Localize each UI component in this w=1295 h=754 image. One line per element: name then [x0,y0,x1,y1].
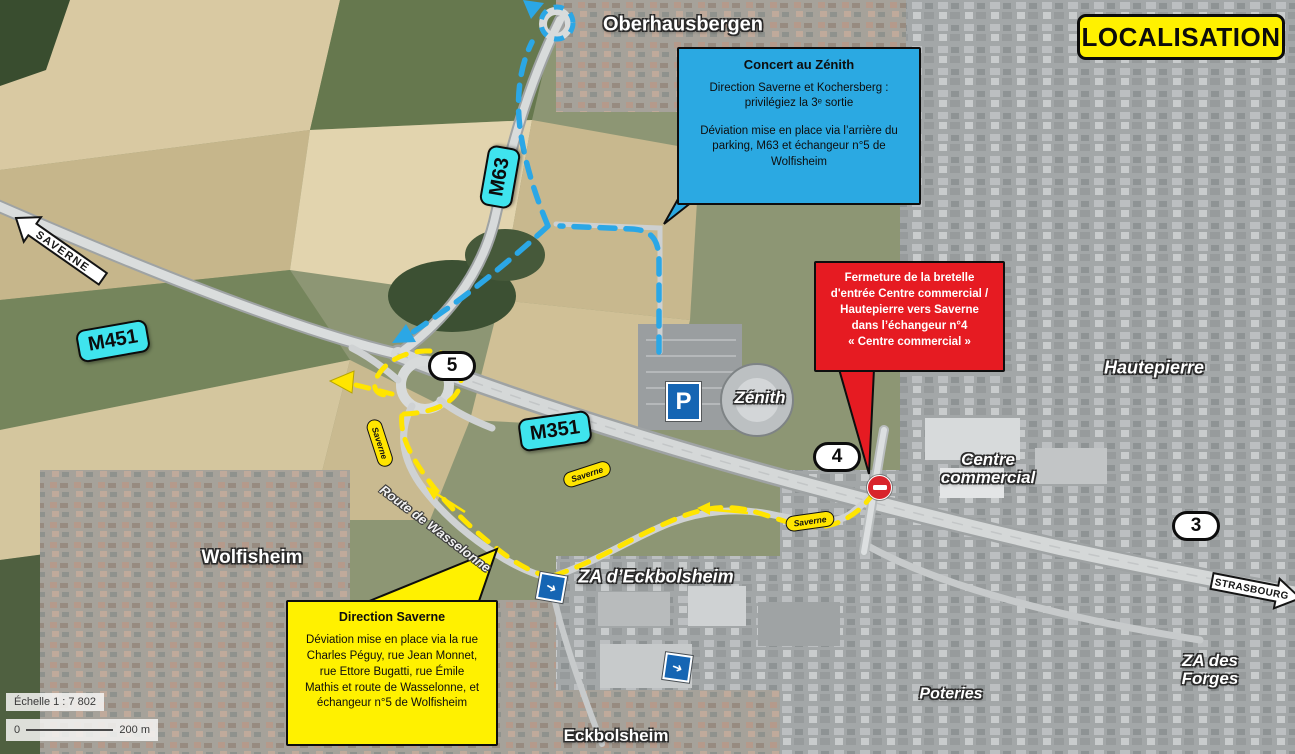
place-label-centre-commercial: Centre commercial [941,451,1036,487]
callout-concert-zenith: Concert au Zénith Direction Saverne et K… [677,47,921,205]
place-label-za-des-forges: ZA des Forges [1168,652,1253,688]
place-label-oberhausbergen: Oberhausbergen [603,15,763,36]
map-canvas: SAVERNE STRASBOURG Oberhausbergen Hautep… [0,0,1295,754]
no-entry-icon [867,475,892,500]
callout-paragraph: Déviation mise en place via l’arrière du… [684,124,914,170]
scale-label: Échelle 1 : 7 802 [6,693,104,711]
place-label-wolfisheim: Wolfisheim [202,548,303,568]
mandatory-direction-icon: ➜ [536,572,567,603]
callout-title: Concert au Zénith [684,57,914,72]
place-label-eckbolsheim: Eckbolsheim [564,727,669,745]
callout-paragraph: Déviation mise en place via la rue Charl… [292,633,492,712]
callout-paragraph: Direction Saverne et Kochersberg : privi… [684,81,914,112]
place-label-hautepierre: Hautepierre [1104,359,1204,378]
interchange-badge-4: 4 [813,442,861,472]
callout-title: Direction Saverne [292,610,492,624]
callout-fermeture-bretelle: Fermeture de la bretelle d'entrée Centre… [814,261,1005,372]
place-label-za-eckbolsheim: ZA d’Eckbolsheim [578,568,733,587]
place-label-poteries: Poteries [919,687,982,704]
parking-icon: P [666,382,701,421]
scale-line [26,729,113,732]
arrow-glyph: ➜ [670,659,685,675]
interchange-badge-5: 5 [428,351,476,381]
place-label-zenith: Zénith [735,389,786,407]
interchange-badge-3: 3 [1172,511,1220,541]
scale-zero: 0 [14,724,20,736]
scale-distance: 200 m [119,724,150,736]
no-entry-bar [873,485,887,490]
map-image: SAVERNE STRASBOURG [0,0,1295,754]
scale-bar: 0 200 m [6,719,158,741]
mandatory-direction-icon: ➜ [662,652,692,682]
page-title: LOCALISATION [1077,14,1285,60]
arrow-glyph: ➜ [544,579,560,596]
callout-direction-saverne: Direction Saverne Déviation mise en plac… [286,600,498,746]
